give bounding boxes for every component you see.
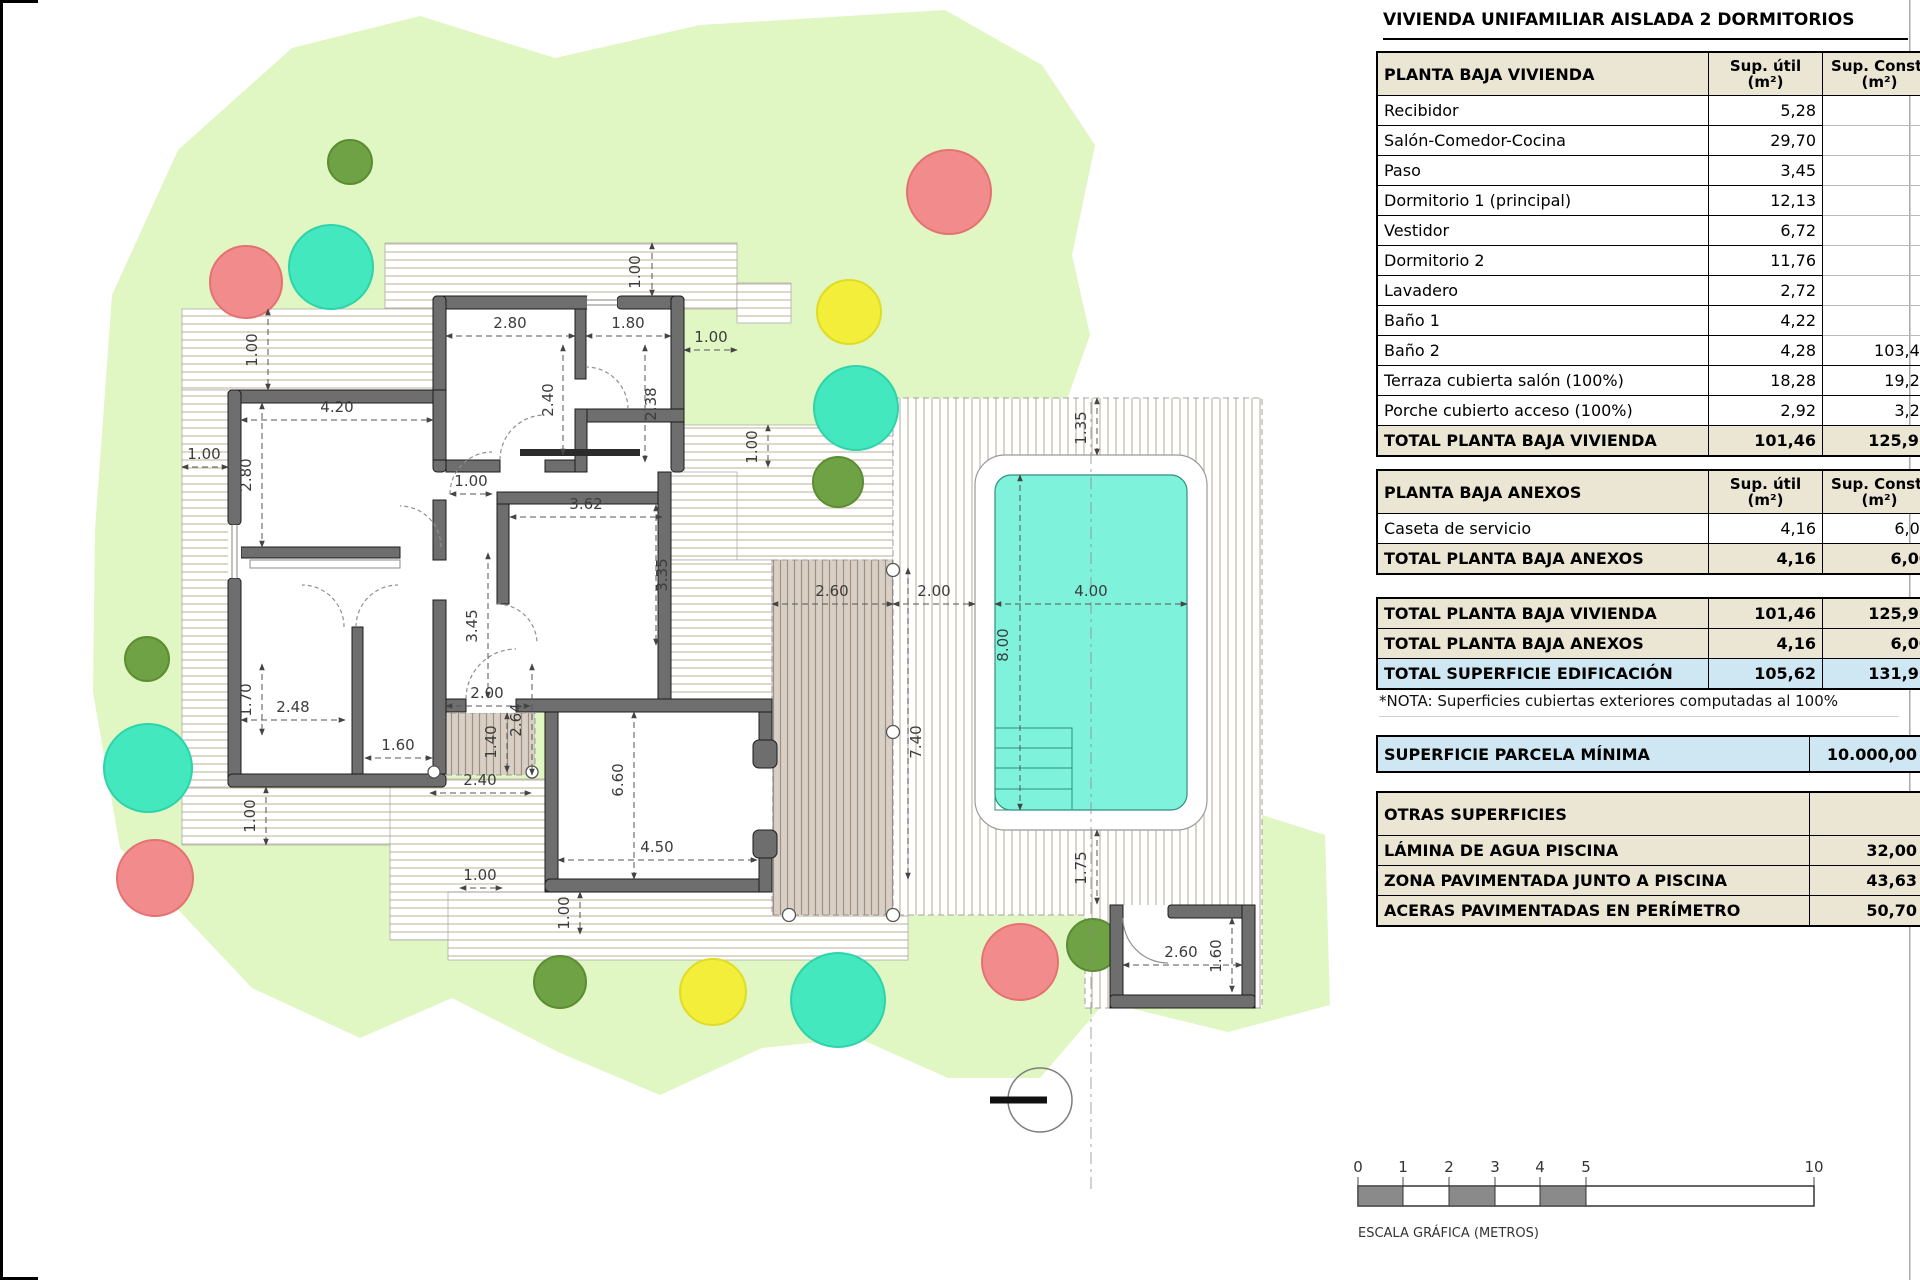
sup-const-cell bbox=[1823, 126, 1920, 156]
dim-label: 3.62 bbox=[569, 495, 602, 513]
surface-label-cell: ZONA PAVIMENTADA JUNTO A PISCINA bbox=[1378, 866, 1810, 896]
sup-util-cell: 5,28 bbox=[1709, 96, 1823, 126]
dim-label: 2.60 bbox=[1164, 943, 1197, 961]
dim-label: 4.00 bbox=[1074, 582, 1107, 600]
surface-value-cell: 32,00 bbox=[1810, 836, 1920, 866]
sup-util-cell: 3,45 bbox=[1709, 156, 1823, 186]
sup-util-cell: 12,13 bbox=[1709, 186, 1823, 216]
table-header-row: PLANTA BAJA ANEXOS Sup. útil(m²) Sup. Co… bbox=[1378, 471, 1920, 514]
sup-const-cell: 103,44 bbox=[1823, 336, 1920, 366]
room-label-cell: Salón-Comedor-Cocina bbox=[1378, 126, 1709, 156]
col-header-sup-const: Sup. Const.(m²) bbox=[1823, 471, 1920, 514]
sup-const-cell: 125,92 bbox=[1823, 426, 1920, 456]
dim-label: 2.80 bbox=[493, 314, 526, 332]
tree-symbol bbox=[813, 457, 863, 507]
tree-symbol bbox=[791, 953, 885, 1047]
sup-util-cell: 105,62 bbox=[1709, 659, 1823, 689]
dim-label: 2.48 bbox=[276, 698, 309, 716]
room-label-cell: Dormitorio 2 bbox=[1378, 246, 1709, 276]
table-totales: TOTAL PLANTA BAJA VIVIENDA101,46125,92 T… bbox=[1377, 598, 1920, 689]
surface-value-cell: 50,70 bbox=[1810, 896, 1920, 926]
dim-label: 1.60 bbox=[1207, 939, 1225, 972]
sup-util-cell: 2,72 bbox=[1709, 276, 1823, 306]
area-schedule-panel: VIVIENDA UNIFAMILIAR AISLADA 2 DORMITORI… bbox=[1375, 0, 1912, 1280]
tree-symbol bbox=[680, 959, 746, 1025]
dim-label: 2.80 bbox=[237, 458, 255, 491]
total-label-cell: TOTAL PLANTA BAJA VIVIENDA bbox=[1378, 599, 1709, 629]
empty-header-cell bbox=[1810, 793, 1920, 836]
dim-label: 1.00 bbox=[454, 472, 487, 490]
sup-util-cell: 29,70 bbox=[1709, 126, 1823, 156]
sup-const-cell: 6,00 bbox=[1823, 514, 1920, 544]
dim-label: 3.35 bbox=[653, 558, 671, 591]
dim-label: 3.45 bbox=[463, 609, 481, 642]
table-row: ZONA PAVIMENTADA JUNTO A PISCINA43,63 bbox=[1378, 866, 1920, 896]
room-label-cell: Dormitorio 1 (principal) bbox=[1378, 186, 1709, 216]
sup-util-cell: 4,16 bbox=[1709, 629, 1823, 659]
dim-label: 1.00 bbox=[463, 866, 496, 884]
room-label-cell: Terraza cubierta salón (100%) bbox=[1378, 366, 1709, 396]
svg-text:0: 0 bbox=[1353, 1158, 1363, 1176]
sup-const-cell bbox=[1823, 276, 1920, 306]
table-total-row: TOTAL PLANTA BAJA VIVIENDA101,46125,92 bbox=[1378, 599, 1920, 629]
sliding-door bbox=[520, 449, 640, 456]
room-label-cell: Recibidor bbox=[1378, 96, 1709, 126]
surface-value-cell: 43,63 bbox=[1810, 866, 1920, 896]
table-row: Porche cubierto acceso (100%)2,923,24 bbox=[1378, 396, 1920, 426]
table-row: Dormitorio 211,76 bbox=[1378, 246, 1920, 276]
sup-const-cell bbox=[1823, 186, 1920, 216]
table-row: SUPERFICIE PARCELA MÍNIMA 10.000,00 bbox=[1378, 737, 1920, 772]
sup-const-cell: 125,92 bbox=[1823, 599, 1920, 629]
total-label-cell: TOTAL PLANTA BAJA ANEXOS bbox=[1378, 629, 1709, 659]
table-total-row: TOTAL PLANTA BAJA VIVIENDA101,46125,92 bbox=[1378, 426, 1920, 456]
dim-label: 1.00 bbox=[626, 255, 644, 288]
sup-util-cell: 101,46 bbox=[1709, 599, 1823, 629]
table-row: Recibidor5,28 bbox=[1378, 96, 1920, 126]
dim-label: 6.60 bbox=[609, 763, 627, 796]
tree-symbol bbox=[982, 924, 1058, 1000]
table-planta-baja-vivienda: PLANTA BAJA VIVIENDA Sup. útil(m²) Sup. … bbox=[1377, 52, 1920, 456]
sup-const-cell bbox=[1823, 156, 1920, 186]
dim-label: 1.00 bbox=[555, 896, 573, 929]
tree-symbol bbox=[907, 150, 991, 234]
dim-label: 1.00 bbox=[241, 799, 259, 832]
dim-label: 4.50 bbox=[640, 838, 673, 856]
dim-label: 1.00 bbox=[187, 445, 220, 463]
dim-label: 2.64 bbox=[507, 703, 525, 736]
sup-util-cell: 11,76 bbox=[1709, 246, 1823, 276]
dim-label: 1.35 bbox=[1072, 411, 1090, 444]
sup-const-cell: 19,24 bbox=[1823, 366, 1920, 396]
parcela-value-cell: 10.000,00 bbox=[1810, 737, 1920, 772]
table-row: LÁMINA DE AGUA PISCINA32,00 bbox=[1378, 836, 1920, 866]
table-total-row: TOTAL PLANTA BAJA ANEXOS4,166,00 bbox=[1378, 629, 1920, 659]
table-grand-total-row: TOTAL SUPERFICIE EDIFICACIÓN105,62131,92 bbox=[1378, 659, 1920, 689]
closet bbox=[250, 560, 400, 568]
table-row: Baño 24,28103,44 bbox=[1378, 336, 1920, 366]
dim-label: 2.40 bbox=[463, 771, 496, 789]
table-header-label: PLANTA BAJA ANEXOS bbox=[1378, 471, 1709, 514]
total-label-cell: TOTAL SUPERFICIE EDIFICACIÓN bbox=[1378, 659, 1709, 689]
tree-symbol bbox=[328, 140, 372, 184]
sup-const-cell bbox=[1823, 246, 1920, 276]
sup-const-cell: 3,24 bbox=[1823, 396, 1920, 426]
table-row: Paso3,45 bbox=[1378, 156, 1920, 186]
dim-label: 2.38 bbox=[642, 387, 660, 420]
sup-const-cell bbox=[1823, 96, 1920, 126]
table-row: Vestidor6,72 bbox=[1378, 216, 1920, 246]
table-planta-baja-anexos: PLANTA BAJA ANEXOS Sup. útil(m²) Sup. Co… bbox=[1377, 470, 1920, 574]
col-header-sup-util: Sup. útil(m²) bbox=[1709, 471, 1823, 514]
room-label-cell: Baño 1 bbox=[1378, 306, 1709, 336]
dim-label: 1.75 bbox=[1072, 851, 1090, 884]
col-header-sup-util: Sup. útil(m²) bbox=[1709, 53, 1823, 96]
tree-symbol bbox=[117, 840, 193, 916]
table-row: Lavadero2,72 bbox=[1378, 276, 1920, 306]
table-header-row: PLANTA BAJA VIVIENDA Sup. útil(m²) Sup. … bbox=[1378, 53, 1920, 96]
table-parcela-minima: SUPERFICIE PARCELA MÍNIMA 10.000,00 bbox=[1377, 736, 1920, 772]
parcela-label-cell: SUPERFICIE PARCELA MÍNIMA bbox=[1378, 737, 1810, 772]
sup-const-cell: 131,92 bbox=[1823, 659, 1920, 689]
sup-util-cell: 4,28 bbox=[1709, 336, 1823, 366]
table-row: Caseta de servicio4,166,00 bbox=[1378, 514, 1920, 544]
table-row: Baño 14,22 bbox=[1378, 306, 1920, 336]
dim-label: 1.60 bbox=[381, 736, 414, 754]
dim-label: 2.60 bbox=[815, 582, 848, 600]
total-label-cell: TOTAL PLANTA BAJA VIVIENDA bbox=[1378, 426, 1709, 456]
table-row: Salón-Comedor-Cocina29,70 bbox=[1378, 126, 1920, 156]
terraza-cubierta bbox=[772, 560, 893, 915]
sup-util-cell: 4,16 bbox=[1709, 514, 1823, 544]
sup-const-cell: 6,00 bbox=[1823, 629, 1920, 659]
footnote: *NOTA: Superficies cubiertas exteriores … bbox=[1379, 692, 1899, 717]
table-row: ACERAS PAVIMENTADAS EN PERÍMETRO50,70 bbox=[1378, 896, 1920, 926]
table-header-row: OTRAS SUPERFICIES bbox=[1378, 793, 1920, 836]
dim-label: 2.00 bbox=[470, 684, 503, 702]
room-label-cell: Vestidor bbox=[1378, 216, 1709, 246]
dim-label: 1.40 bbox=[482, 725, 500, 758]
sup-util-cell: 18,28 bbox=[1709, 366, 1823, 396]
table-otras-superficies: OTRAS SUPERFICIES LÁMINA DE AGUA PISCINA… bbox=[1377, 792, 1920, 926]
dim-label: 4.20 bbox=[320, 398, 353, 416]
plan-sheet: 1.00 2.80 1.80 1.00 2.40 2.38 4.20 2.80 … bbox=[0, 0, 1920, 1280]
sup-const-cell bbox=[1823, 306, 1920, 336]
dim-label: 1.70 bbox=[237, 683, 255, 716]
sheet-title: VIVIENDA UNIFAMILIAR AISLADA 2 DORMITORI… bbox=[1383, 10, 1908, 40]
sup-const-cell bbox=[1823, 216, 1920, 246]
tree-symbol bbox=[210, 246, 282, 318]
table-header-label: PLANTA BAJA VIVIENDA bbox=[1378, 53, 1709, 96]
sup-util-cell: 2,92 bbox=[1709, 396, 1823, 426]
room-label-cell: Porche cubierto acceso (100%) bbox=[1378, 396, 1709, 426]
dim-label: 8.00 bbox=[994, 628, 1012, 661]
surface-label-cell: LÁMINA DE AGUA PISCINA bbox=[1378, 836, 1810, 866]
sup-const-cell: 6,00 bbox=[1823, 544, 1920, 574]
dim-label: 2.40 bbox=[539, 383, 557, 416]
table-total-row: TOTAL PLANTA BAJA ANEXOS4,166,00 bbox=[1378, 544, 1920, 574]
sup-util-cell: 4,16 bbox=[1709, 544, 1823, 574]
tree-symbol bbox=[534, 956, 586, 1008]
col-header-sup-const: Sup. Const.(m²) bbox=[1823, 53, 1920, 96]
sup-util-cell: 6,72 bbox=[1709, 216, 1823, 246]
dim-label: 1.00 bbox=[694, 328, 727, 346]
surface-label-cell: ACERAS PAVIMENTADAS EN PERÍMETRO bbox=[1378, 896, 1810, 926]
dim-label: 1.00 bbox=[243, 333, 261, 366]
room-label-cell: Caseta de servicio bbox=[1378, 514, 1709, 544]
dim-label: 2.00 bbox=[917, 582, 950, 600]
room-label-cell: Baño 2 bbox=[1378, 336, 1709, 366]
sup-util-cell: 101,46 bbox=[1709, 426, 1823, 456]
dim-label: 1.80 bbox=[611, 314, 644, 332]
room-label-cell: Lavadero bbox=[1378, 276, 1709, 306]
dim-label: 7.40 bbox=[907, 725, 925, 758]
table-row: Terraza cubierta salón (100%)18,2819,24 bbox=[1378, 366, 1920, 396]
table-row: Dormitorio 1 (principal)12,13 bbox=[1378, 186, 1920, 216]
tree-symbol bbox=[289, 225, 373, 309]
tree-symbol bbox=[125, 637, 169, 681]
dim-label: 1.00 bbox=[743, 430, 761, 463]
tree-symbol bbox=[104, 724, 192, 812]
sup-util-cell: 4,22 bbox=[1709, 306, 1823, 336]
tree-symbol bbox=[814, 366, 898, 450]
total-label-cell: TOTAL PLANTA BAJA ANEXOS bbox=[1378, 544, 1709, 574]
table-header-label: OTRAS SUPERFICIES bbox=[1378, 793, 1810, 836]
room-label-cell: Paso bbox=[1378, 156, 1709, 186]
tree-symbol bbox=[817, 280, 881, 344]
